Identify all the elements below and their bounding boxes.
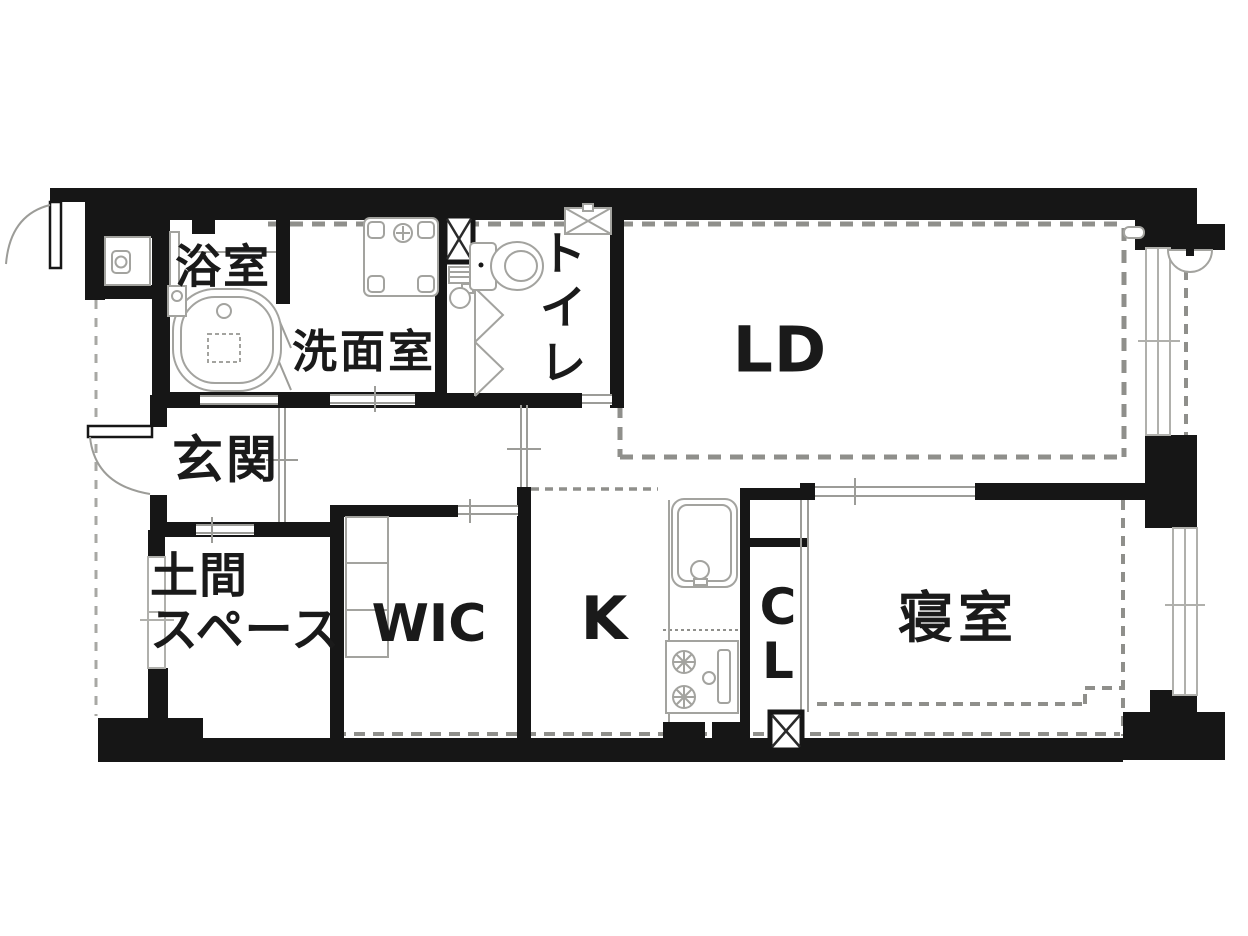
bathroom-lower-opening bbox=[200, 395, 278, 405]
ld-window bbox=[1138, 248, 1180, 435]
room-label-washroom: 洗面室 bbox=[292, 326, 436, 378]
room-label-closet: C L bbox=[760, 580, 797, 688]
bedroom-window bbox=[1165, 528, 1205, 695]
room-label-doma-space: 土間 スペース bbox=[150, 549, 340, 657]
bedroom-sliding-door bbox=[815, 478, 975, 505]
room-label-bedroom: 寝室 bbox=[898, 587, 1018, 651]
gas-stove-icon bbox=[666, 641, 738, 713]
hall-sliding-door bbox=[507, 405, 541, 487]
room-label-entrance: 玄関 bbox=[172, 431, 280, 490]
room-label-bathroom: 浴室 bbox=[175, 240, 271, 293]
wic-door bbox=[458, 499, 518, 523]
closet-pipe-space-icon bbox=[770, 712, 802, 750]
toilet-door bbox=[582, 394, 612, 405]
washing-machine-icon bbox=[364, 218, 438, 296]
doma-opening bbox=[196, 517, 254, 543]
closet-edge bbox=[801, 500, 808, 712]
toilet-icon bbox=[470, 242, 543, 290]
room-label-toilet: ト イ レ bbox=[540, 227, 586, 390]
pipe-space-icon bbox=[445, 216, 473, 262]
porch-door bbox=[6, 202, 61, 268]
meter-box-icon bbox=[105, 237, 150, 285]
washroom-door bbox=[330, 386, 415, 412]
room-label-living-dining: LD bbox=[733, 313, 827, 386]
entrance-door bbox=[88, 426, 152, 494]
room-label-kitchen: K bbox=[581, 585, 628, 655]
room-label-wic: WIC bbox=[372, 594, 487, 654]
kitchen-sink-icon bbox=[672, 499, 737, 587]
floorplan-canvas: 浴室 洗面室 ト イ レ LD 玄関 土間 スペース WIC K C L 寝室 bbox=[0, 0, 1248, 936]
